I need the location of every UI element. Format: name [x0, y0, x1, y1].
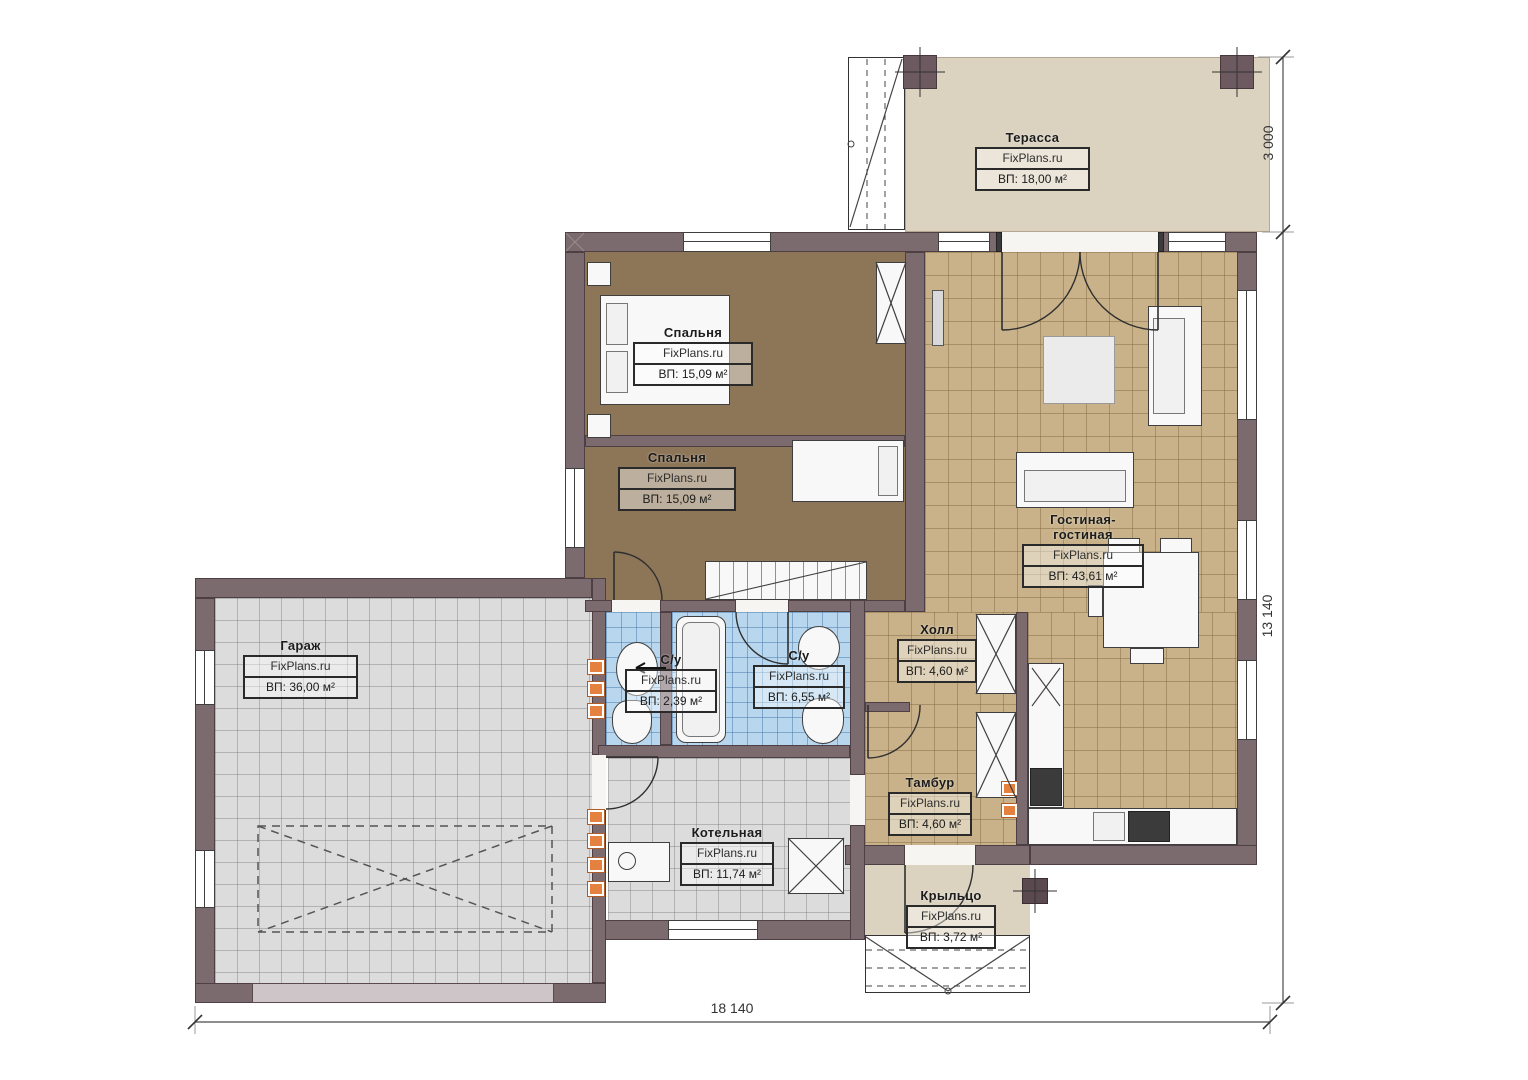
room-title: Спальня	[633, 325, 753, 340]
wall-garage-top	[195, 578, 592, 598]
wardrobe-hall	[976, 614, 1016, 694]
pillow	[606, 303, 628, 345]
door-opening-bathroom	[736, 600, 788, 612]
dimension-house-width: 18 140	[672, 1000, 792, 1016]
wall-bedroom2-bottom-a	[585, 600, 612, 612]
boiler-dial	[618, 852, 636, 870]
watermark: FixPlans.ru	[682, 844, 772, 865]
door-opening-terrace	[1000, 232, 1160, 252]
tv-unit	[932, 290, 944, 346]
pillow	[606, 351, 628, 393]
room-label-vestibule: Тамбур FixPlans.ru ВП: 4,60 м²	[888, 775, 972, 836]
vent-block	[588, 660, 604, 674]
label-box: FixPlans.ru ВП: 4,60 м²	[888, 792, 972, 836]
watermark: FixPlans.ru	[620, 469, 734, 490]
window-living-top-right	[1168, 232, 1226, 252]
window-bedroom-1	[683, 232, 771, 252]
vent-block	[588, 682, 604, 696]
sofa-middle-seat	[1024, 470, 1126, 502]
door-post-right	[1158, 232, 1164, 252]
nightstand	[587, 262, 611, 286]
room-area: ВП: 4,60 м²	[899, 662, 975, 681]
porch-column	[1022, 878, 1048, 904]
room-label-bedroom-2: Спальня FixPlans.ru ВП: 15,09 м²	[618, 450, 736, 511]
label-box: FixPlans.ru ВП: 43,61 м²	[1022, 544, 1144, 588]
room-area: ВП: 11,74 м²	[682, 865, 772, 884]
vent-block	[588, 858, 604, 872]
wall-bedroom2-bottom-c	[788, 600, 905, 612]
dimension-terrace-depth: 3 000	[1260, 113, 1276, 173]
room-area: ВП: 15,09 м²	[635, 365, 751, 384]
nightstand	[587, 414, 611, 438]
room-area: ВП: 36,00 м²	[245, 678, 356, 697]
window-bedroom-2	[565, 468, 585, 548]
label-box: FixPlans.ru ВП: 6,55 м²	[753, 665, 845, 709]
dish-rack	[1128, 811, 1170, 842]
room-label-garage: Гараж FixPlans.ru ВП: 36,00 м²	[243, 638, 358, 699]
room-label-hall: Холл FixPlans.ru ВП: 4,60 м²	[897, 622, 977, 683]
room-label-porch: Крыльцо FixPlans.ru ВП: 3,72 м²	[906, 888, 996, 949]
door-opening-garage-boiler	[592, 755, 606, 810]
label-box: FixPlans.ru ВП: 18,00 м²	[975, 147, 1090, 191]
room-title: С/у	[753, 648, 845, 663]
room-title: Терасса	[975, 130, 1090, 145]
room-label-boiler-room: Котельная FixPlans.ru ВП: 11,74 м²	[680, 825, 774, 886]
wall-hall-stub	[865, 702, 910, 712]
vent-block	[588, 810, 604, 824]
stove	[1030, 768, 1062, 806]
window-kitchen-right	[1237, 660, 1257, 740]
room-area: ВП: 4,60 м²	[890, 815, 970, 834]
watermark: FixPlans.ru	[1024, 546, 1142, 567]
label-box: FixPlans.ru ВП: 2,39 м²	[625, 669, 717, 713]
wall-bottom-right	[1030, 845, 1257, 865]
room-area: ВП: 3,72 м²	[908, 928, 994, 947]
label-box: FixPlans.ru ВП: 11,74 м²	[680, 842, 774, 886]
room-title: С/у	[625, 652, 717, 667]
kitchen-sink	[1093, 812, 1125, 841]
vent-block	[588, 882, 604, 896]
window-living-right-1	[1237, 290, 1257, 420]
garage-door	[252, 983, 554, 1003]
wall-bath-bottom	[598, 745, 850, 758]
rug	[1043, 336, 1115, 404]
watermark: FixPlans.ru	[977, 149, 1088, 170]
room-area: ВП: 2,39 м²	[627, 692, 715, 711]
floor-plan: Терасса FixPlans.ru ВП: 18,00 м² Спальня…	[0, 0, 1528, 1080]
label-box: FixPlans.ru ВП: 15,09 м²	[633, 342, 753, 386]
room-title: Спальня	[618, 450, 736, 465]
room-area: ВП: 6,55 м²	[755, 688, 843, 707]
vent-block	[1002, 782, 1017, 795]
chair	[1160, 538, 1192, 553]
window-boiler	[668, 920, 758, 940]
watermark: FixPlans.ru	[890, 794, 970, 815]
label-box: FixPlans.ru ВП: 36,00 м²	[243, 655, 358, 699]
wall-bath-right-upper	[850, 600, 865, 775]
room-area: ВП: 18,00 м²	[977, 170, 1088, 189]
room-label-living-room: Гостиная-гостиная FixPlans.ru ВП: 43,61 …	[1022, 512, 1144, 588]
label-box: FixPlans.ru ВП: 4,60 м²	[897, 639, 977, 683]
vent-block	[1002, 804, 1017, 817]
room-title: Тамбур	[888, 775, 972, 790]
window-living-top-left	[938, 232, 990, 252]
room-title: Крыльцо	[906, 888, 996, 903]
door-opening-vestibule-boiler	[850, 775, 865, 825]
watermark: FixPlans.ru	[899, 641, 975, 662]
window-garage-2	[195, 850, 215, 908]
door-opening-porch	[905, 845, 975, 865]
watermark: FixPlans.ru	[627, 671, 715, 692]
vent-block	[588, 834, 604, 848]
dimension-house-height: 13 140	[1259, 584, 1275, 648]
terrace-stairs	[848, 57, 905, 230]
door-opening-bedroom2	[612, 600, 660, 612]
vent-block	[588, 704, 604, 718]
room-label-bathroom: С/у FixPlans.ru ВП: 6,55 м²	[753, 648, 845, 709]
sofa-right-seat	[1153, 318, 1185, 414]
wall-bedrooms-living	[905, 252, 925, 612]
closet-built-in	[705, 561, 867, 600]
room-title: Холл	[897, 622, 977, 637]
pillow	[878, 446, 898, 496]
room-label-bathroom-small: С/у FixPlans.ru ВП: 2,39 м²	[625, 652, 717, 713]
room-title: Гостиная-гостиная	[1022, 512, 1144, 542]
wardrobe-bedroom-1	[876, 262, 906, 344]
label-box: FixPlans.ru ВП: 15,09 м²	[618, 467, 736, 511]
wall-bedroom2-bottom-b	[660, 600, 736, 612]
label-box: FixPlans.ru ВП: 3,72 м²	[906, 905, 996, 949]
chair	[1130, 648, 1164, 664]
terrace-column-left	[903, 55, 937, 89]
room-label-terrace: Терасса FixPlans.ru ВП: 18,00 м²	[975, 130, 1090, 191]
watermark: FixPlans.ru	[908, 907, 994, 928]
chair	[1088, 585, 1103, 617]
wall-bath-right-lower	[850, 825, 865, 940]
room-title: Котельная	[680, 825, 774, 840]
wall-porch-right	[975, 845, 1030, 865]
window-living-right-2	[1237, 520, 1257, 600]
wall-hall-kitchen	[1016, 612, 1028, 845]
watermark: FixPlans.ru	[755, 667, 843, 688]
window-garage-1	[195, 650, 215, 705]
room-label-bedroom-1: Спальня FixPlans.ru ВП: 15,09 м²	[633, 325, 753, 386]
room-title: Гараж	[243, 638, 358, 653]
boiler-equipment	[788, 838, 844, 894]
room-area: ВП: 15,09 м²	[620, 490, 734, 509]
watermark: FixPlans.ru	[245, 657, 356, 678]
watermark: FixPlans.ru	[635, 344, 751, 365]
terrace-column-right	[1220, 55, 1254, 89]
room-area: ВП: 43,61 м²	[1024, 567, 1142, 586]
door-post-left	[996, 232, 1002, 252]
